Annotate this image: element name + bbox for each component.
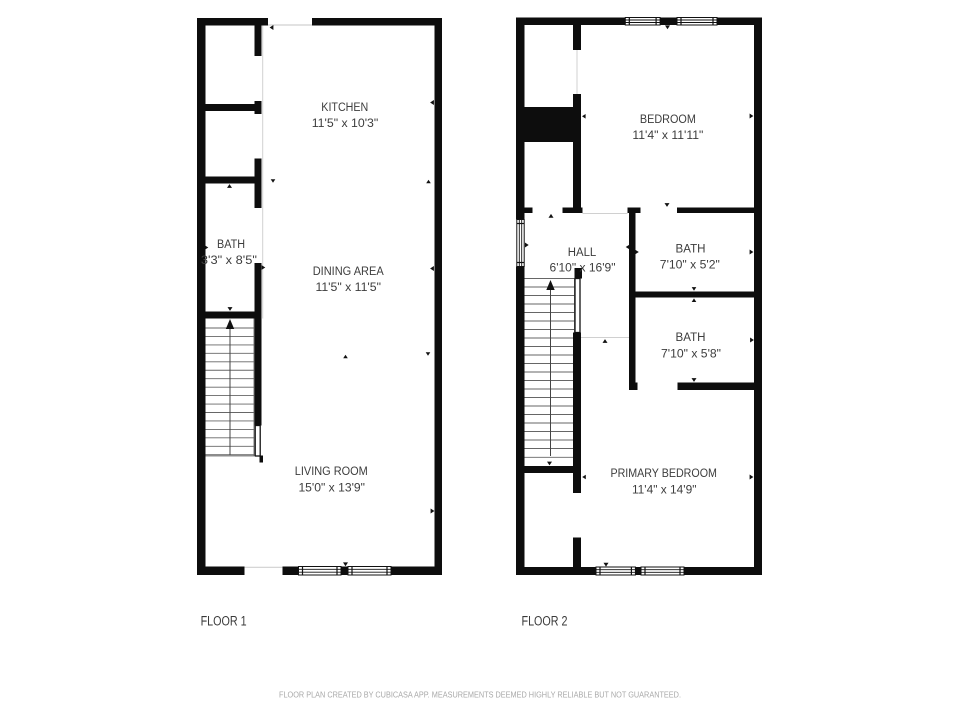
svg-text:LIVING ROOM: LIVING ROOM	[295, 464, 368, 478]
svg-text:KITCHEN: KITCHEN	[321, 100, 368, 114]
svg-text:PRIMARY BEDROOM: PRIMARY BEDROOM	[610, 466, 717, 480]
svg-text:6'10" x 16'9": 6'10" x 16'9"	[550, 261, 616, 275]
svg-text:11'4" x 11'11": 11'4" x 11'11"	[632, 128, 703, 142]
svg-text:11'5" x 10'3": 11'5" x 10'3"	[312, 116, 379, 130]
svg-text:FLOOR PLAN CREATED BY CUBICASA: FLOOR PLAN CREATED BY CUBICASA APP. MEAS…	[279, 691, 681, 700]
svg-text:15'0" x 13'9": 15'0" x 13'9"	[298, 481, 365, 495]
svg-text:DINING AREA: DINING AREA	[313, 264, 385, 278]
svg-text:BATH: BATH	[676, 330, 706, 344]
svg-text:7'10" x 5'2": 7'10" x 5'2"	[660, 257, 720, 271]
svg-text:FLOOR 2: FLOOR 2	[522, 614, 568, 630]
svg-text:BATH: BATH	[676, 242, 706, 256]
svg-text:BEDROOM: BEDROOM	[640, 112, 696, 126]
svg-text:FLOOR 1: FLOOR 1	[201, 614, 247, 630]
svg-text:11'5" x 11'5": 11'5" x 11'5"	[315, 280, 381, 294]
svg-text:7'10" x 5'8": 7'10" x 5'8"	[661, 347, 721, 361]
svg-text:3'3" x 8'5": 3'3" x 8'5"	[201, 253, 257, 267]
svg-text:BATH: BATH	[217, 237, 245, 251]
svg-text:11'4" x 14'9": 11'4" x 14'9"	[632, 482, 697, 496]
svg-text:HALL: HALL	[568, 245, 597, 259]
